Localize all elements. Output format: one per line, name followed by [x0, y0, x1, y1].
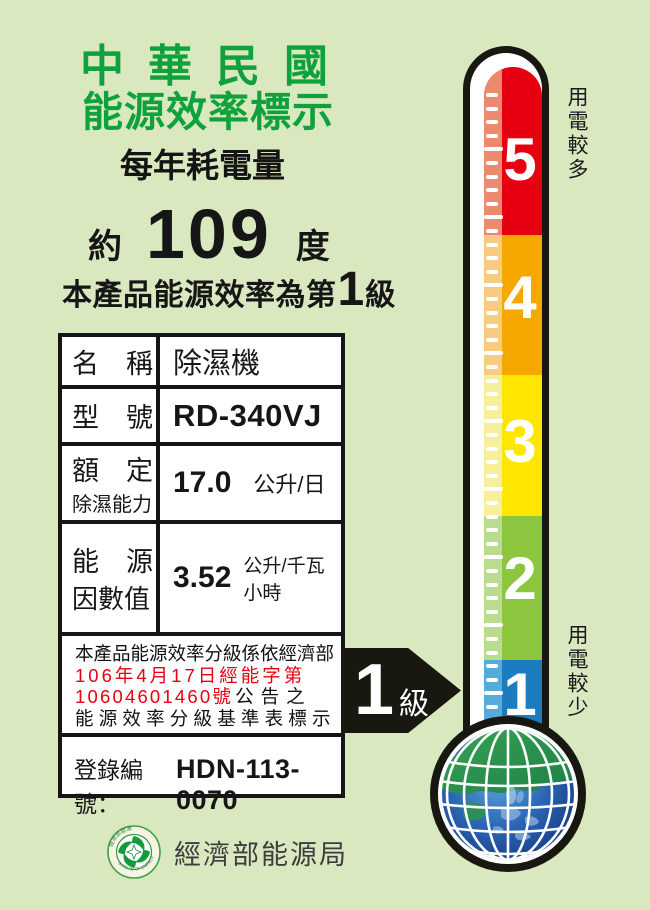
- announcement-line3: 10604601460號公告之: [75, 686, 329, 708]
- grade-arrow-number: 1: [354, 648, 394, 733]
- row-capacity-label-line2: 除濕能力: [72, 488, 156, 517]
- product-info-table: 名 稱 除濕機 型 號 RD-340VJ 額 定 除濕能力 17.0 公升/日 …: [58, 333, 345, 798]
- announcement-line2: 106年4月17日經能字第: [75, 665, 329, 687]
- row-capacity-value-cell: 17.0 公升/日: [160, 446, 341, 520]
- tick-minor: [486, 610, 498, 614]
- tick-major: [484, 283, 503, 287]
- announcement-line3-red: 10604601460號: [75, 686, 233, 707]
- tick-minor: [486, 324, 498, 328]
- tick-major: [484, 215, 503, 219]
- row-factor-label-line1: 能 源: [72, 540, 156, 579]
- tick-minor: [486, 447, 498, 451]
- table-row-model: 型 號 RD-340VJ: [62, 385, 341, 442]
- announcement-line1: 本產品能源效率分級係依經濟部: [75, 643, 329, 665]
- tick-minor: [486, 474, 498, 478]
- tick-minor: [486, 379, 498, 383]
- label-title-line2: 能源效率標示: [82, 78, 334, 138]
- table-row-capacity: 額 定 除濕能力 17.0 公升/日: [62, 442, 341, 520]
- tick-major: [484, 691, 503, 695]
- label-less-power: 用電較少: [561, 624, 591, 720]
- agency-name: 經濟部能源局: [174, 833, 348, 872]
- thermo-number-2: 2: [500, 548, 540, 610]
- grade-suffix: 級: [365, 270, 396, 314]
- row-model-value-cell: RD-340VJ: [160, 389, 341, 442]
- tick-minor: [486, 678, 498, 682]
- row-name-value-cell: 除濕機: [160, 337, 341, 385]
- thermo-number-4: 4: [500, 267, 540, 329]
- row-name-label-cell: 名 稱: [62, 337, 160, 385]
- tick-minor: [486, 637, 498, 641]
- row-name-value: 除濕機: [173, 340, 260, 382]
- thermometer: 54321: [463, 46, 549, 760]
- consumption-prefix: 約: [88, 219, 122, 268]
- tick-minor: [486, 569, 498, 573]
- row-factor-label-cell: 能 源 因數值: [62, 524, 160, 632]
- thermo-number-5: 5: [500, 129, 540, 191]
- thermo-number-3: 3: [500, 411, 540, 473]
- announcement-line3-black: 公告之: [235, 686, 312, 707]
- tick-minor: [486, 202, 498, 206]
- globe-graphic: [423, 709, 593, 879]
- tick-minor: [486, 175, 498, 179]
- row-factor-label-line2: 因數值: [72, 579, 156, 616]
- consumption-unit: 度: [296, 219, 330, 268]
- registration-label: 登錄編號：: [74, 751, 176, 819]
- row-capacity-label-line1: 額 定: [72, 449, 156, 488]
- row-factor-unit: 公升/千瓦小時: [243, 551, 341, 605]
- tick-minor: [486, 120, 498, 124]
- row-name-label: 名 稱: [72, 342, 156, 381]
- tick-minor: [486, 651, 498, 655]
- row-capacity-value: 17.0: [173, 466, 231, 500]
- tick-minor: [486, 433, 498, 437]
- annual-consumption-heading: 每年耗電量: [120, 139, 285, 187]
- tick-minor: [486, 596, 498, 600]
- footer-agency-row: 經濟部能源局 BUREAU OF ENERGY 經濟部能源局: [106, 824, 348, 880]
- tick-minor: [486, 583, 498, 587]
- tick-minor: [486, 297, 498, 301]
- tick-minor: [486, 365, 498, 369]
- announcement-cell: 本產品能源效率分級係依經濟部 106年4月17日經能字第 10604601460…: [62, 632, 341, 733]
- thermometer-inner-ring: 54321: [470, 53, 542, 760]
- tick-major: [484, 623, 503, 627]
- label-more-power: 用電較多: [561, 86, 591, 182]
- registration-cell: 登錄編號： HDN-113-0070: [62, 733, 341, 794]
- table-row-factor: 能 源 因數值 3.52 公升/千瓦小時: [62, 520, 341, 632]
- grade-prefix: 本產品能源效率為第: [62, 270, 337, 314]
- row-factor-value: 3.52: [173, 561, 231, 595]
- tick-minor: [486, 243, 498, 247]
- tick-minor: [486, 460, 498, 464]
- tick-major: [484, 419, 503, 423]
- row-model-label: 型 號: [72, 396, 156, 435]
- bureau-of-energy-seal-icon: 經濟部能源局 BUREAU OF ENERGY: [106, 824, 162, 880]
- tick-major: [484, 351, 503, 355]
- tick-major: [484, 555, 503, 559]
- row-capacity-unit: 公升/日: [253, 467, 325, 499]
- registration-number: HDN-113-0070: [176, 754, 341, 816]
- tick-minor: [486, 392, 498, 396]
- row-capacity-label-cell: 額 定 除濕能力: [62, 446, 160, 520]
- tick-minor: [486, 93, 498, 97]
- tick-minor: [486, 270, 498, 274]
- tick-minor: [486, 256, 498, 260]
- grade-number: 1: [337, 262, 366, 317]
- tick-minor: [486, 515, 498, 519]
- tick-minor: [486, 311, 498, 315]
- tick-minor: [486, 528, 498, 532]
- tick-minor: [486, 229, 498, 233]
- tick-major: [484, 147, 503, 151]
- tick-minor: [486, 161, 498, 165]
- table-row-name: 名 稱 除濕機: [62, 337, 341, 385]
- tick-major: [484, 487, 503, 491]
- tick-minor: [486, 188, 498, 192]
- tick-minor: [486, 664, 498, 668]
- thermometer-fill: 54321: [484, 67, 542, 767]
- tick-minor: [486, 501, 498, 505]
- tick-minor: [486, 338, 498, 342]
- tick-minor: [486, 134, 498, 138]
- announcement-line4: 能源效率分級基準表標示: [75, 708, 329, 730]
- efficiency-grade-line: 本產品能源效率為第 1 級: [62, 262, 396, 317]
- row-factor-value-cell: 3.52 公升/千瓦小時: [160, 524, 341, 632]
- tick-minor: [486, 107, 498, 111]
- tick-minor: [486, 542, 498, 546]
- tick-minor: [486, 406, 498, 410]
- row-model-value: RD-340VJ: [173, 398, 322, 434]
- row-model-label-cell: 型 號: [62, 389, 160, 442]
